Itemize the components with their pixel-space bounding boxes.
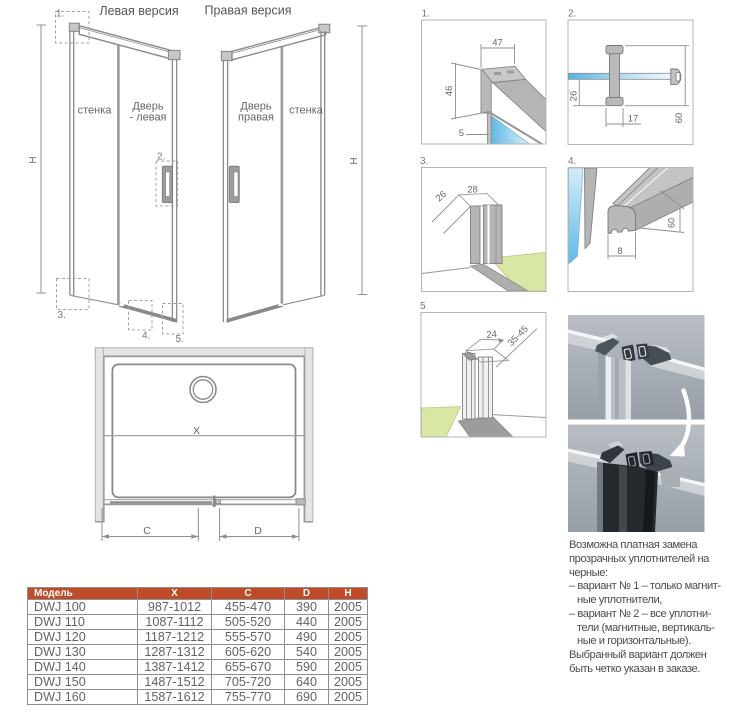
svg-text:X: X: [193, 425, 200, 437]
svg-text:5.: 5.: [176, 334, 184, 345]
svg-text:60: 60: [667, 218, 677, 228]
svg-text:H: H: [28, 156, 39, 163]
svg-text:3.: 3.: [420, 156, 428, 167]
svg-text:46: 46: [444, 86, 455, 97]
svg-text:1.: 1.: [56, 9, 64, 20]
svg-text:стенка: стенка: [78, 105, 113, 117]
svg-text:8: 8: [617, 246, 622, 257]
svg-text:Левая версия: Левая версия: [99, 4, 178, 18]
svg-text:4.: 4.: [568, 156, 576, 167]
svg-text:5: 5: [459, 128, 464, 139]
svg-text:1.: 1.: [422, 9, 430, 20]
svg-text:Правая версия: Правая версия: [205, 4, 292, 18]
svg-text:- левая: - левая: [129, 112, 166, 124]
svg-text:28: 28: [467, 185, 478, 196]
svg-text:5: 5: [420, 301, 426, 312]
svg-text:2.: 2.: [568, 9, 576, 20]
svg-text:60: 60: [674, 113, 685, 124]
svg-text:26: 26: [569, 91, 580, 102]
svg-text:D: D: [254, 525, 262, 537]
svg-text:2.: 2.: [157, 152, 165, 163]
svg-text:C: C: [143, 525, 151, 537]
svg-text:47: 47: [492, 38, 503, 49]
svg-text:правая: правая: [238, 112, 274, 124]
svg-text:3.: 3.: [58, 310, 66, 321]
svg-text:17: 17: [628, 114, 639, 125]
svg-text:4.: 4.: [142, 331, 150, 342]
svg-text:H: H: [349, 157, 360, 164]
svg-text:стенка: стенка: [289, 105, 324, 117]
svg-text:24: 24: [486, 329, 498, 341]
